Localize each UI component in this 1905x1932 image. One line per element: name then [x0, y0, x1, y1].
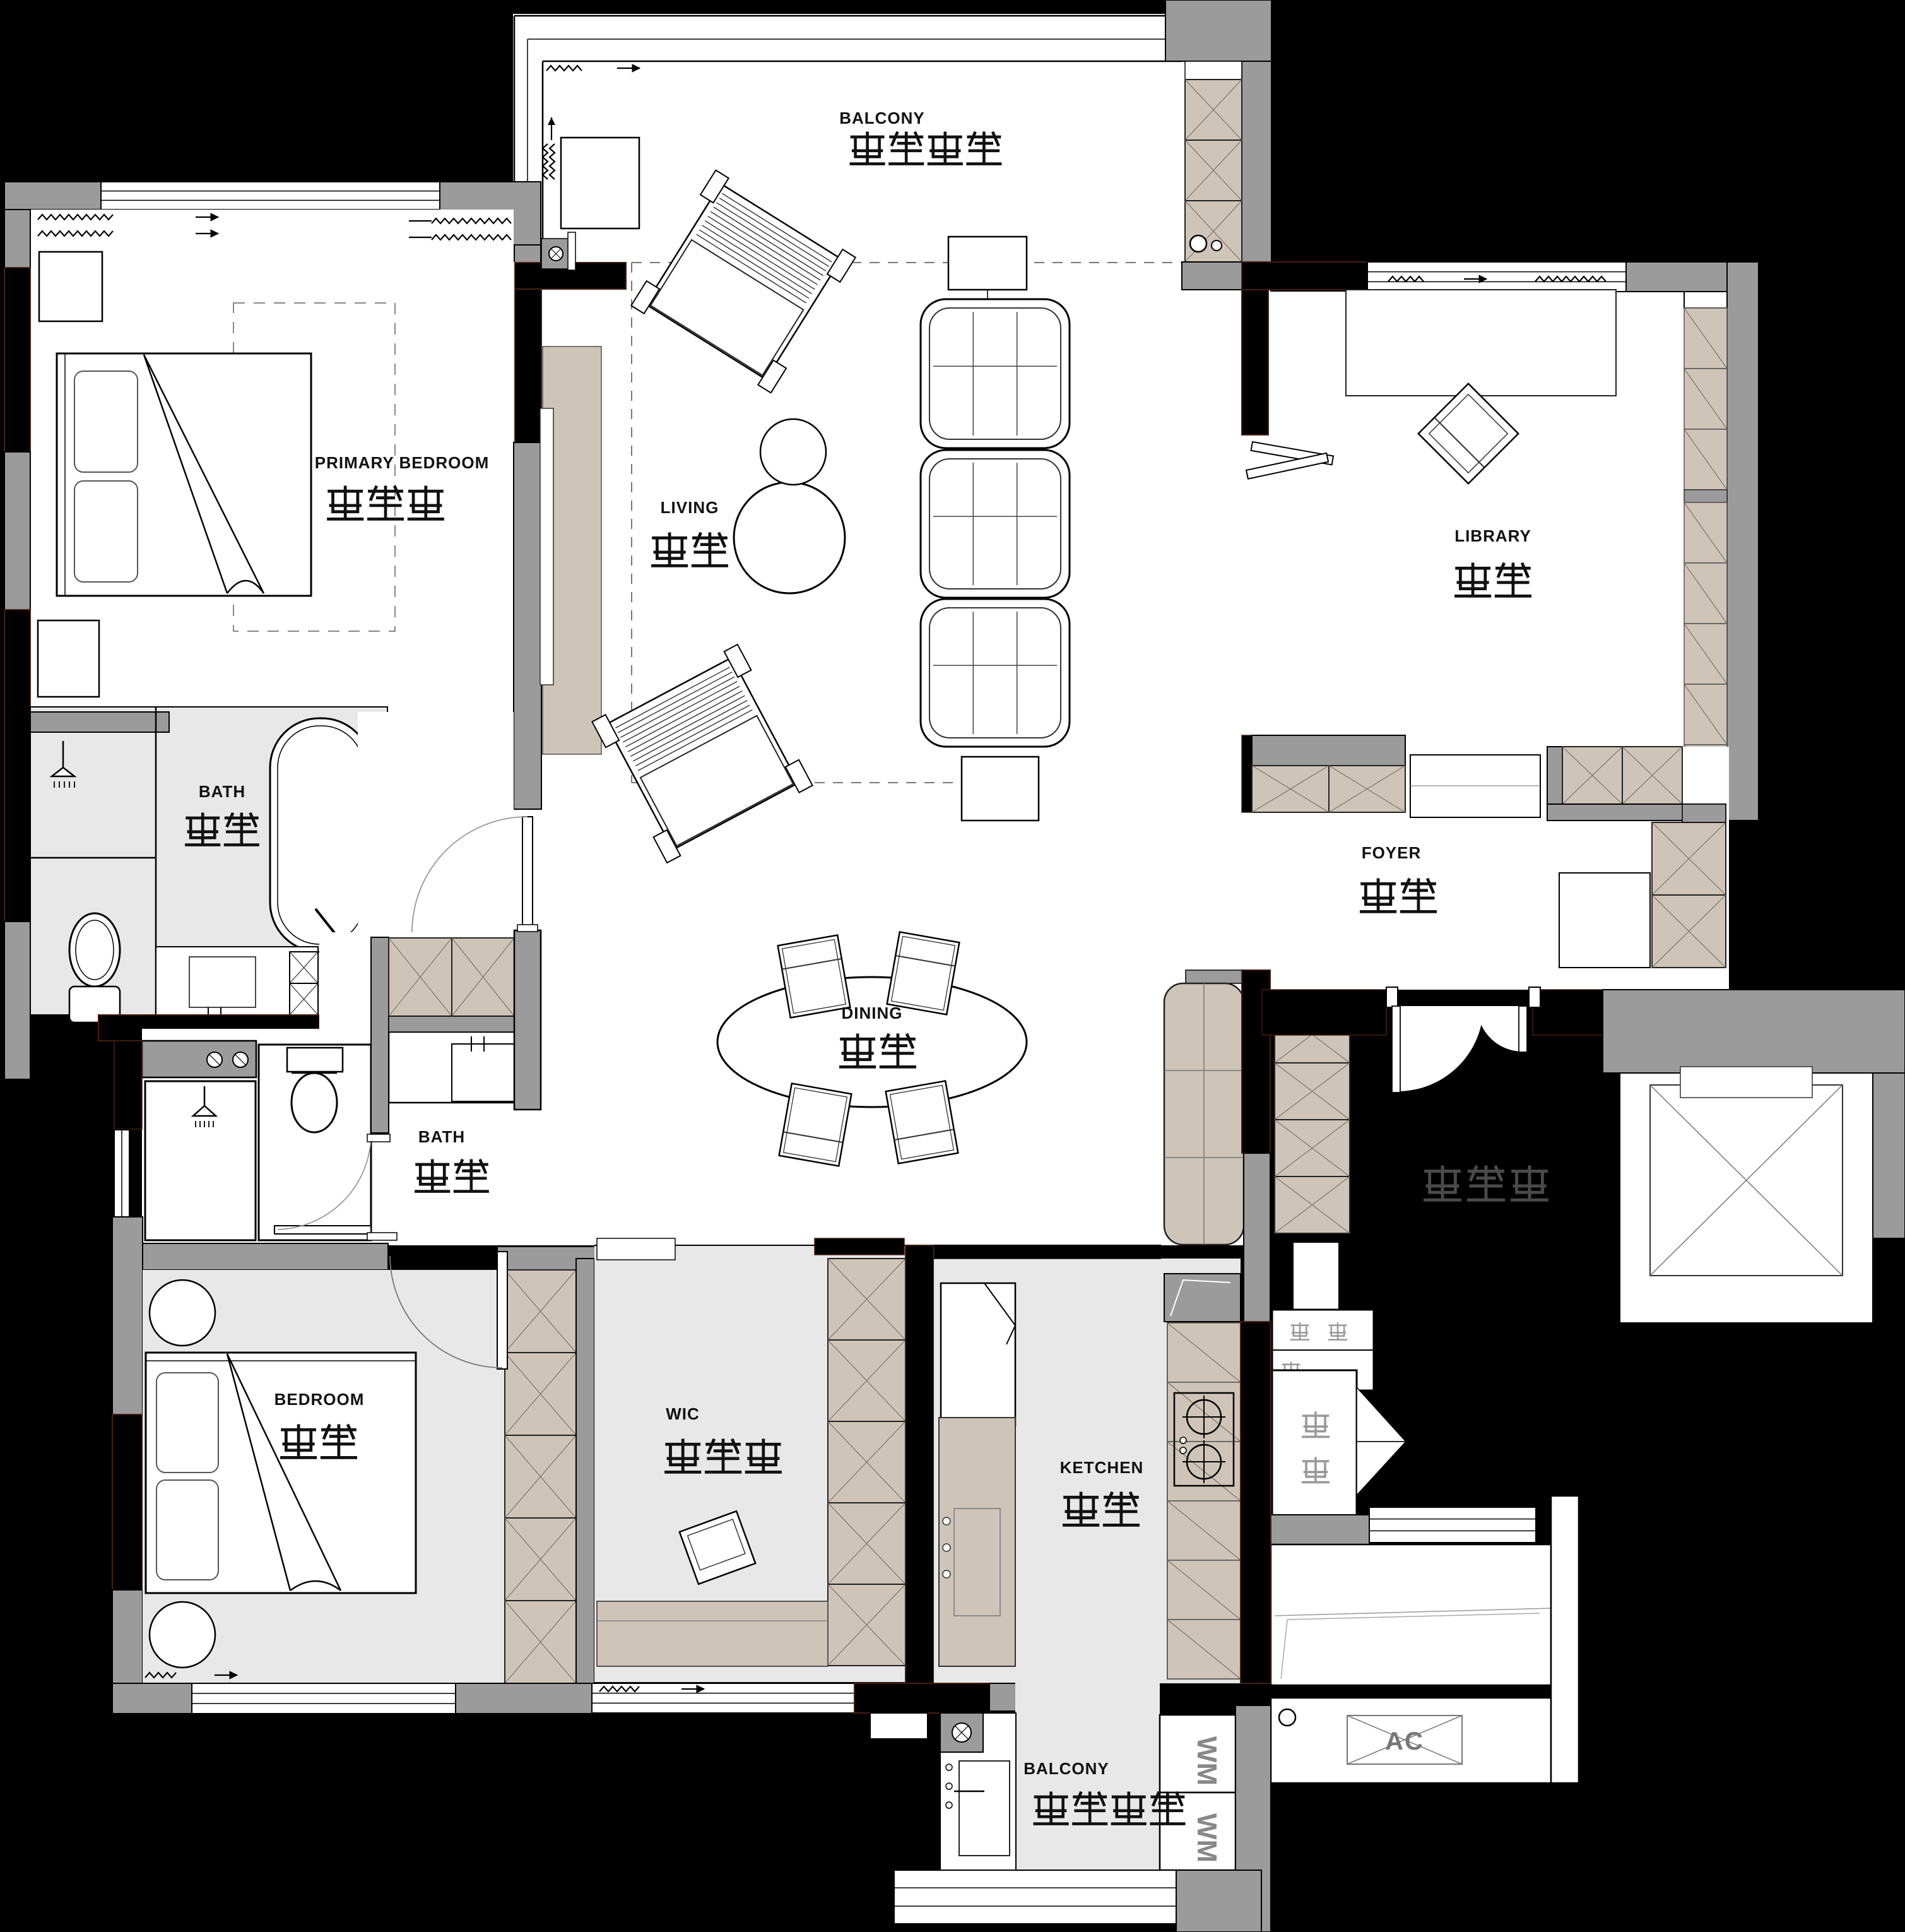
svg-text:BATH: BATH — [199, 782, 245, 801]
svg-text:WM: WM — [1191, 1813, 1222, 1863]
svg-text:DINING: DINING — [842, 1004, 903, 1022]
svg-text:PRIMARY BEDROOM: PRIMARY BEDROOM — [315, 453, 489, 472]
svg-text:LIBRARY: LIBRARY — [1454, 526, 1531, 545]
svg-text:LIVING: LIVING — [661, 498, 719, 517]
svg-text:BEDROOM: BEDROOM — [274, 1390, 365, 1409]
svg-text:FOYER: FOYER — [1362, 843, 1422, 862]
svg-text:BALCONY: BALCONY — [839, 109, 925, 127]
svg-text:BALCONY: BALCONY — [1023, 1759, 1109, 1778]
svg-text:AC: AC — [1385, 1728, 1424, 1755]
svg-text:WIC: WIC — [666, 1404, 700, 1423]
svg-text:KETCHEN: KETCHEN — [1060, 1458, 1144, 1477]
svg-text:BATH: BATH — [418, 1127, 465, 1146]
svg-text:WM: WM — [1191, 1736, 1222, 1786]
